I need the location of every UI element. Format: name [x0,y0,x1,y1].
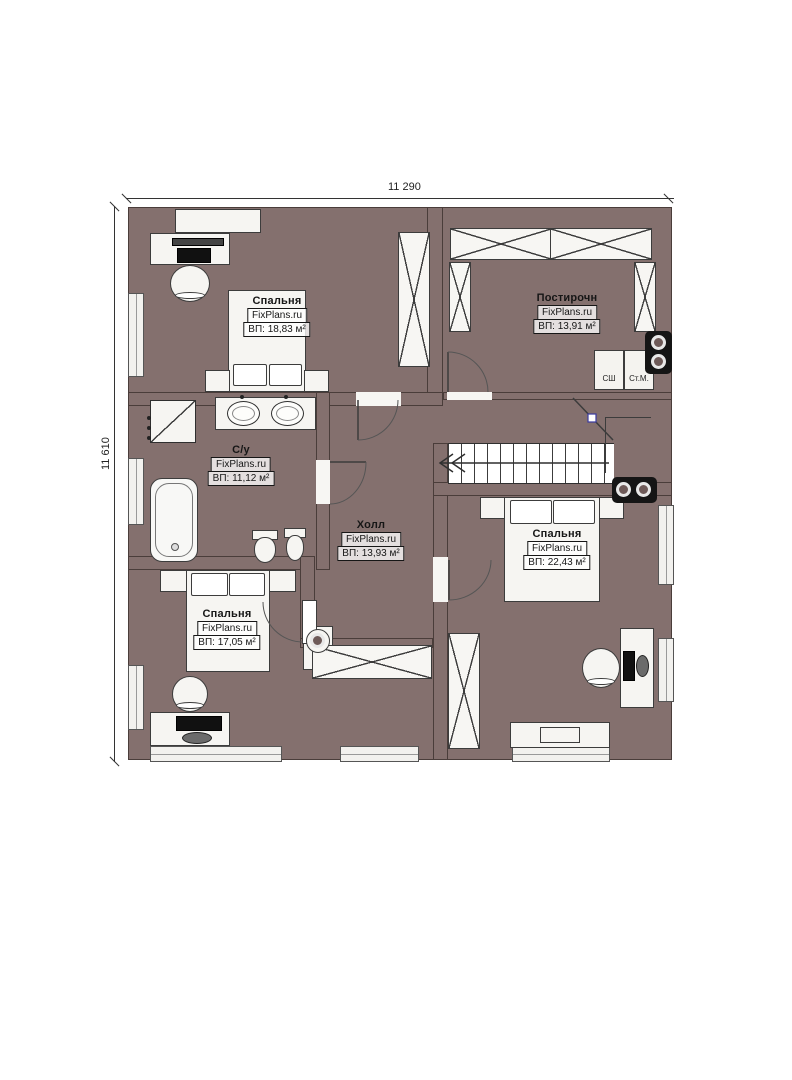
pillow [269,364,302,386]
door-opening [316,460,330,504]
room-area: ВП: 13,93 м² [337,546,404,561]
window [512,746,610,762]
window [658,638,674,702]
dimension-width-label: 11 290 [388,181,421,193]
wardrobe [450,228,552,260]
monitor [172,238,224,246]
wardrobe [550,228,652,260]
nightstand [304,370,329,392]
wardrobe [448,633,480,749]
room-name: С/у [232,444,250,456]
dimension-height-label: 11 610 [100,437,112,470]
label-bedroom-right: Спальня FixPlans.ru ВП: 22,43 м² [523,528,590,570]
sink [271,401,304,426]
shower-knob [147,416,151,420]
sink [227,401,260,426]
label-bedroom-bottom-left: Спальня FixPlans.ru ВП: 17,05 м² [193,608,260,650]
window [128,458,144,525]
bathtub [150,478,198,562]
nightstand [268,570,296,592]
label-bedroom-top-left: Спальня FixPlans.ru ВП: 18,83 м² [243,295,310,337]
chair [170,265,210,302]
nightstand [205,370,230,392]
room-name: Спальня [253,295,302,307]
room-name: Холл [357,519,385,531]
shower-knob [147,426,151,430]
wardrobe [312,645,432,679]
wardrobe [449,262,471,332]
keyboard [636,655,649,677]
faucet [240,395,244,399]
pillow [510,500,552,524]
laundry-sink [645,331,672,374]
bidet [284,528,306,561]
computer [177,248,211,263]
keyboard [182,732,212,744]
pillow [229,573,265,596]
pillow [553,500,595,524]
window [658,505,674,585]
nightstand [480,497,506,519]
room-name: Спальня [533,528,582,540]
wardrobe [398,232,430,367]
toilet [252,530,278,563]
door-swing [449,558,493,602]
boiler-flue [306,629,330,653]
room-area: ВП: 22,43 м² [523,555,590,570]
room-name: Спальня [203,608,252,620]
window [128,293,144,377]
dimension-height-line [114,206,115,762]
label-hall: Холл FixPlans.ru ВП: 13,93 м² [337,519,404,561]
chair [172,676,208,712]
window [128,665,144,730]
pillow [233,364,267,386]
floor-plan-page: 11 290 11 610 [0,0,792,1080]
washing-machine-label: Ст.М. [629,374,649,383]
door-swing [356,400,402,444]
pillow [191,573,228,596]
door-swing [446,350,492,394]
door-swing [263,600,305,644]
door-opening [433,557,448,602]
double-sink [612,477,657,503]
drying-cabinet-label: СШ [602,374,615,383]
drying-cabinet: СШ [594,350,624,390]
monitor [623,651,635,681]
shower [150,400,196,443]
label-laundry: Постирочн FixPlans.ru ВП: 13,91 м² [533,292,600,334]
room-area: ВП: 18,83 м² [243,322,310,337]
stair-direction-arrow [431,448,616,478]
chair [582,648,620,688]
door-swing [330,460,370,506]
room-area: ВП: 13,91 м² [533,319,600,334]
nightstand [160,570,188,592]
dresser-drawer [540,727,580,743]
computer [176,716,222,731]
room-area: ВП: 17,05 м² [193,635,260,650]
stair-break-line [571,396,617,444]
window [150,746,282,762]
wardrobe [634,262,656,332]
window [340,746,419,762]
dresser [175,209,261,233]
dimension-width-line [126,198,674,199]
room-area: ВП: 11,12 м² [208,471,275,486]
label-bathroom: С/у FixPlans.ru ВП: 11,12 м² [208,444,275,486]
faucet [284,395,288,399]
room-name: Постирочн [537,292,598,304]
shower-knob [147,436,151,440]
